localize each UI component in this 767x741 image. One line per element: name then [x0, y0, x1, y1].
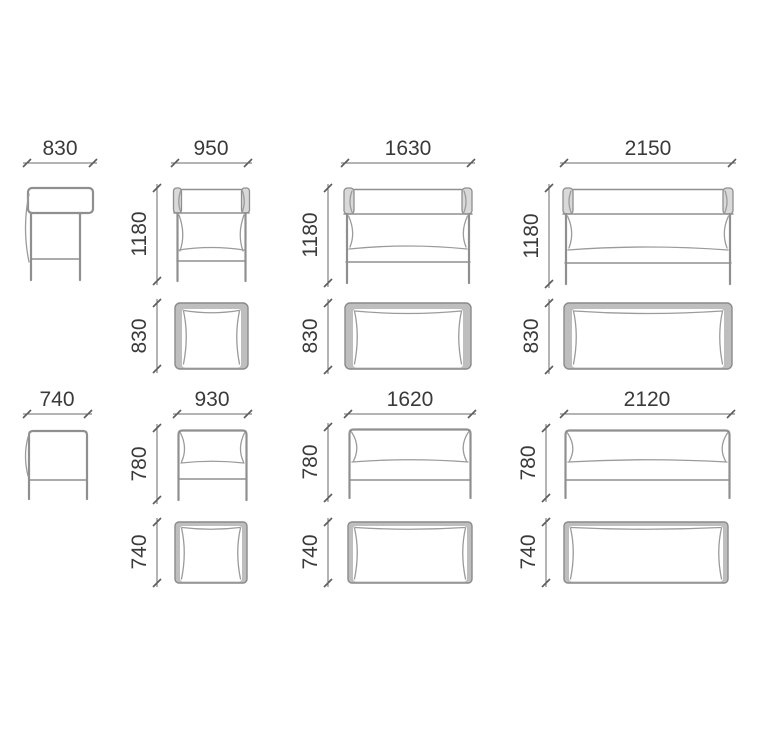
dim-label-lfront3-width: 2120 — [624, 388, 671, 411]
dim-label-front3-height: 1180 — [520, 213, 543, 258]
top-view-seat — [353, 309, 463, 368]
seat-line — [352, 460, 468, 462]
high-back-front-view-2: 1630 1180 — [299, 137, 475, 287]
dim-label-lfront2-height: 780 — [299, 444, 322, 479]
cushion-side-curves — [349, 216, 468, 247]
high-back-top-view-1: 830 — [128, 299, 248, 373]
side-cushion-curve — [26, 437, 29, 476]
diagram-svg: 830 950 1180 1630 1180 — [0, 0, 767, 741]
dim-label-top1-depth: 830 — [128, 318, 151, 353]
dim-label-front1-width: 950 — [193, 137, 228, 160]
seat-line — [568, 247, 728, 250]
seat-line — [349, 246, 467, 249]
dim-label-front1-height: 1180 — [128, 211, 151, 256]
top-view-seat — [180, 526, 242, 582]
top-view-seat — [353, 526, 467, 582]
low-back-top-view-2: 740 — [299, 518, 472, 587]
cushion-side-curves — [179, 215, 244, 251]
back-pillow-curves — [568, 433, 728, 461]
dim-label-lfront1-width: 930 — [194, 388, 229, 411]
dim-label-top3-depth: 830 — [520, 318, 543, 353]
side-legs — [31, 213, 80, 280]
low-back-side-view: 740 — [23, 388, 92, 499]
low-back-front-view-2: 1620 780 — [299, 388, 476, 502]
low-back-top-view-1: 740 — [128, 518, 247, 587]
seat-line — [568, 460, 727, 462]
front-posts — [347, 214, 469, 283]
dim-label-lfront3-height: 780 — [517, 445, 540, 480]
low-back-front-view-1: 930 780 — [128, 388, 252, 504]
dim-label-ltop2-depth: 740 — [299, 534, 322, 569]
dim-label-ltop1-depth: 740 — [128, 534, 151, 569]
front-frame — [350, 430, 471, 499]
furniture-dimension-diagram: 830 950 1180 1630 1180 — [0, 0, 767, 741]
high-back-front-view-3: 2150 1180 — [520, 137, 736, 288]
dim-label-top2-depth: 830 — [299, 318, 322, 353]
top-view-seat — [182, 309, 241, 368]
dim-label-front2-height: 1180 — [299, 212, 322, 257]
high-back-front-view-1: 950 1180 — [128, 137, 252, 285]
cap-inner-curves — [179, 191, 245, 211]
dim-label-ltop3-depth: 740 — [517, 534, 540, 569]
left-arm-cap — [344, 188, 354, 214]
side-back-panel — [28, 188, 93, 213]
right-arm-cap — [462, 188, 472, 214]
left-arm-cap — [563, 188, 573, 214]
back-pillow-curves — [352, 432, 469, 461]
low-back-front-view-3: 2120 780 — [517, 388, 735, 502]
dim-label-high-side-width: 830 — [42, 137, 77, 160]
dim-label-lfront1-height: 780 — [128, 446, 151, 481]
dim-label-low-side-width: 740 — [39, 388, 74, 411]
front-frame — [179, 431, 247, 501]
low-back-top-view-3: 740 — [517, 518, 728, 587]
dim-label-front3-width: 2150 — [625, 137, 672, 160]
top-view-seat — [569, 526, 723, 582]
high-back-top-view-2: 830 — [299, 299, 471, 374]
seat-line — [181, 461, 244, 463]
back-pillow-curves — [181, 433, 245, 462]
dim-label-lfront2-width: 1620 — [387, 388, 434, 411]
right-arm-cap — [723, 188, 733, 214]
high-back-top-view-3: 830 — [520, 299, 732, 374]
cushion-side-curves — [568, 216, 729, 248]
dim-label-front2-width: 1630 — [385, 137, 432, 160]
cap-inner-curves — [350, 191, 466, 212]
side-frame — [29, 431, 87, 499]
high-back-side-view: 830 — [23, 137, 97, 280]
cap-inner-curves — [569, 191, 727, 212]
seat-line — [179, 248, 244, 251]
top-view-seat — [572, 309, 724, 368]
front-frame — [566, 431, 730, 499]
